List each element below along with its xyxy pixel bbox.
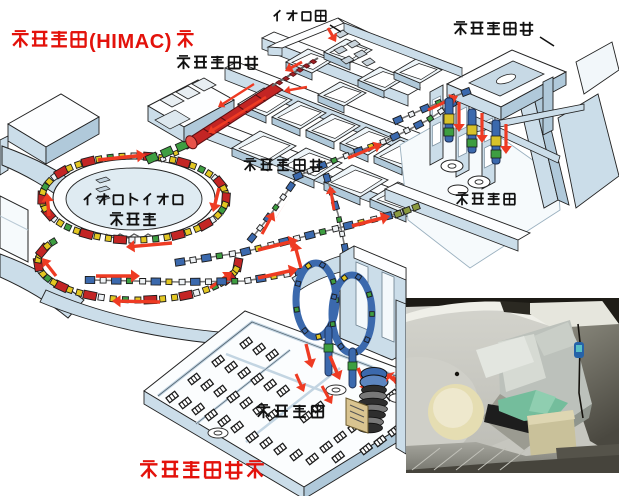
svg-text:(HIMAC): (HIMAC) — [89, 31, 172, 53]
